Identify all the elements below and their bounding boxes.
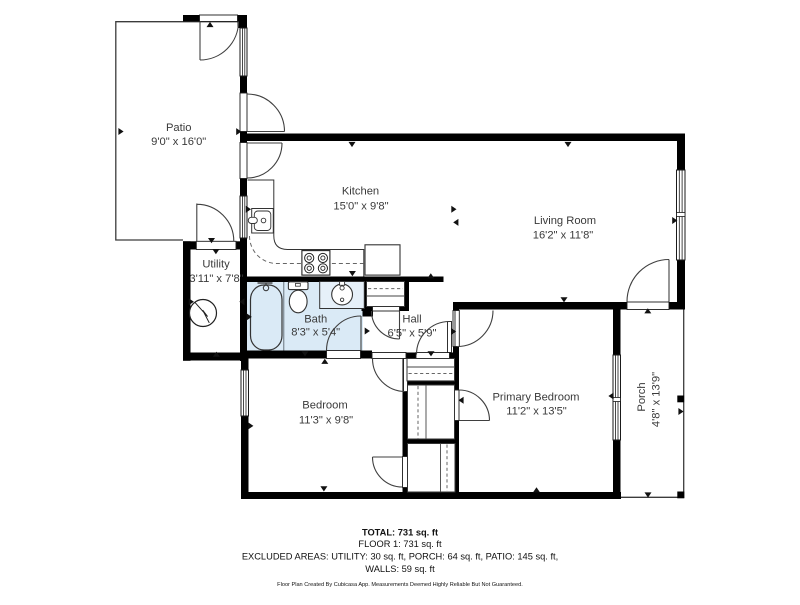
svg-text:11'2" x 13'5": 11'2" x 13'5" [506, 406, 567, 418]
svg-text:Bedroom: Bedroom [302, 400, 347, 412]
svg-text:4'8" x 13'9": 4'8" x 13'9" [651, 372, 663, 427]
svg-text:Porch: Porch [636, 382, 648, 411]
svg-text:Hall: Hall [402, 314, 421, 326]
svg-text:Bath: Bath [304, 314, 327, 326]
svg-text:15'0" x 9'8": 15'0" x 9'8" [333, 201, 388, 213]
svg-text:FLOOR 1: 731 sq. ft: FLOOR 1: 731 sq. ft [358, 539, 442, 549]
svg-text:Kitchen: Kitchen [342, 186, 379, 198]
svg-text:Patio: Patio [166, 122, 192, 134]
svg-text:3'11" x 7'8": 3'11" x 7'8" [189, 273, 243, 285]
svg-text:Utility: Utility [202, 259, 230, 271]
svg-text:6'5" x 5'9": 6'5" x 5'9" [388, 328, 437, 340]
svg-text:9'0" x 16'0": 9'0" x 16'0" [151, 136, 206, 148]
svg-text:16'2" x 11'8": 16'2" x 11'8" [533, 230, 594, 242]
svg-text:11'3" x 9'8": 11'3" x 9'8" [299, 415, 353, 427]
svg-text:EXCLUDED AREAS: UTILITY: 30 sq: EXCLUDED AREAS: UTILITY: 30 sq. ft, PORC… [242, 551, 558, 561]
svg-text:WALLS: 59 sq. ft: WALLS: 59 sq. ft [365, 564, 435, 574]
svg-text:8'3" x 5'4": 8'3" x 5'4" [291, 327, 340, 339]
svg-text:TOTAL: 731 sq. ft: TOTAL: 731 sq. ft [362, 527, 438, 537]
svg-text:Primary Bedroom: Primary Bedroom [492, 392, 579, 404]
svg-text:Living Room: Living Room [534, 215, 596, 227]
svg-text:Floor Plan Created By Cubicasa: Floor Plan Created By Cubicasa App. Meas… [277, 582, 523, 588]
